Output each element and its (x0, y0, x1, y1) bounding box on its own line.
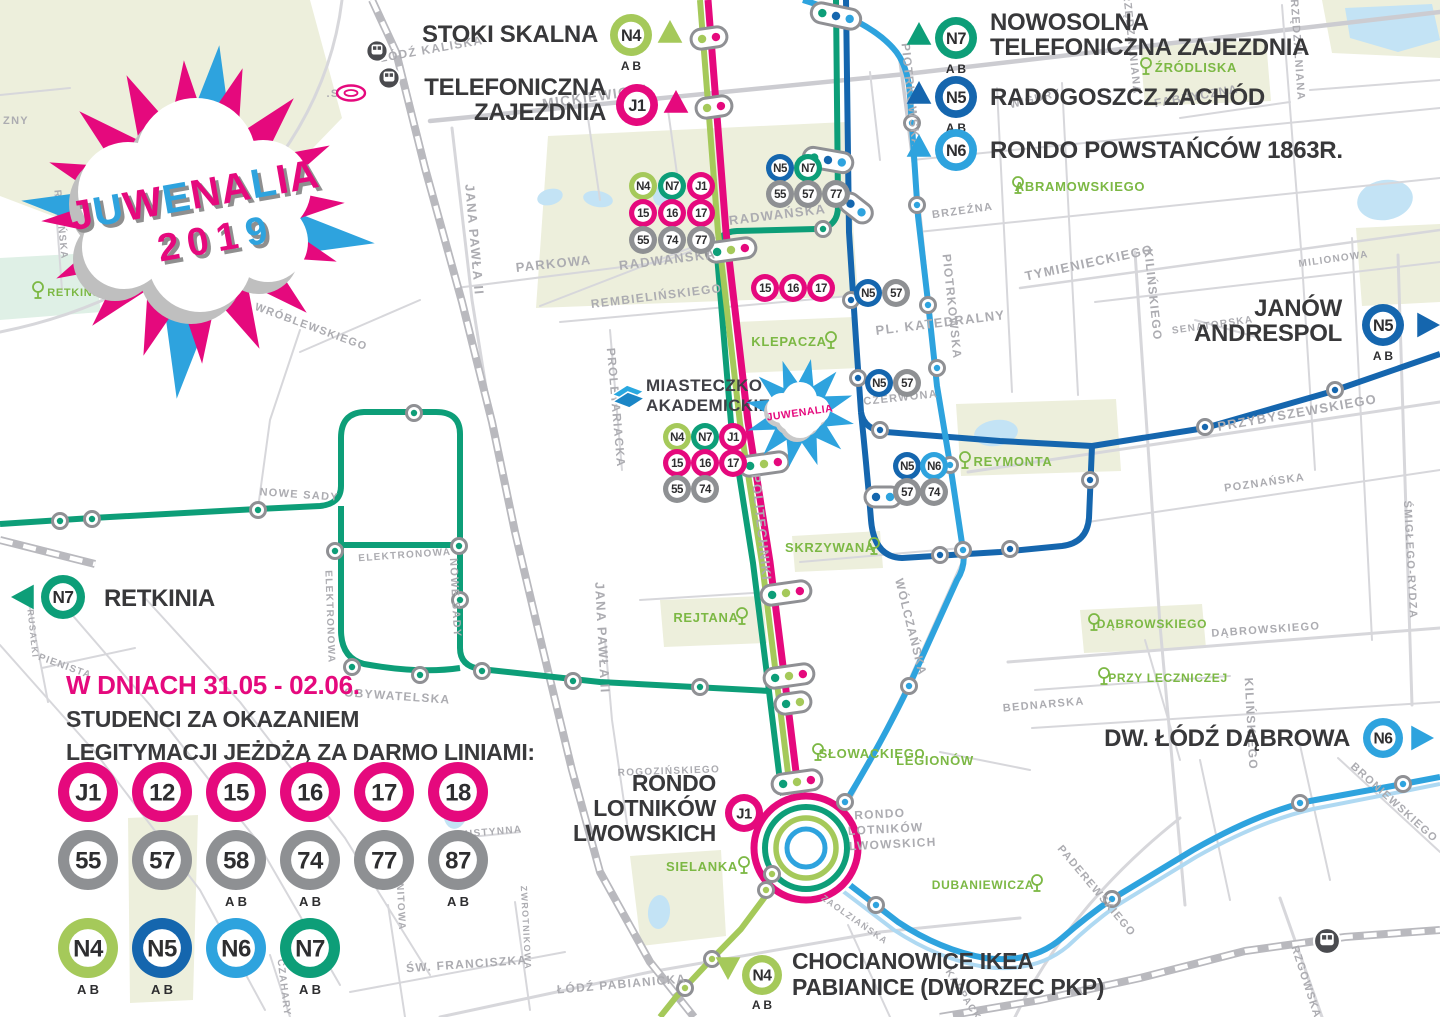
svg-text:55: 55 (637, 235, 650, 247)
line-badge-N7: N7 (935, 17, 977, 59)
svg-text:N5: N5 (900, 461, 915, 473)
line-badge-15: 15 (751, 274, 779, 302)
transit-stop-group (695, 95, 733, 120)
svg-text:57: 57 (901, 378, 913, 390)
svg-text:N7: N7 (801, 163, 815, 175)
street-label-nitowa: NITOWA (394, 883, 407, 931)
svg-text:N5: N5 (773, 163, 788, 175)
ab-label: A B (752, 998, 773, 1012)
tree-icon (739, 857, 749, 873)
transit-stop (956, 543, 971, 558)
street-label-rzgowska: RZGOWSKA (1288, 944, 1323, 1017)
line-badge-17: 17 (807, 274, 835, 302)
svg-text:15: 15 (223, 780, 249, 807)
transit-stop (873, 423, 888, 438)
svg-text:16: 16 (787, 283, 799, 295)
street-label-nowe-sady: NOWE SADY (259, 486, 339, 504)
park-label-klepacza: KLEPACZA (751, 334, 826, 349)
train-icon (367, 41, 388, 62)
svg-text:55: 55 (774, 189, 787, 201)
train-icon (379, 68, 400, 89)
svg-text:17: 17 (815, 283, 827, 295)
line-badge-N7: N7 (41, 575, 85, 619)
line-badge-15: 15 (206, 762, 266, 822)
transit-stop (838, 795, 853, 810)
transit-stop-group (760, 580, 812, 607)
transit-stop-group (809, 1, 862, 31)
svg-text:N6: N6 (1374, 731, 1394, 748)
terminus-text: PABIANICE (DWORZEC PKP) (792, 974, 1104, 1000)
ab-label: A B (447, 894, 469, 909)
street-label--w-franciszka: ŚW. FRANCISZKA (406, 952, 528, 975)
line-badge-J1: J1 (719, 423, 747, 451)
ab-label: A B (1373, 349, 1394, 363)
line-badge-N5: N5 (854, 279, 882, 307)
street-road (258, 330, 300, 508)
svg-text:74: 74 (666, 235, 679, 247)
line-badge-87: 87 (428, 830, 488, 890)
line-badge-57: 57 (794, 180, 822, 208)
badge-cluster: N557 (854, 279, 910, 307)
line-badge-15: 15 (663, 449, 691, 477)
line-badge-74: 74 (920, 478, 948, 506)
street-label-d-browskiego: DĄBROWSKIEGO (1211, 620, 1321, 640)
terminus-text: RADOGOSZCZ ZACHÓD (990, 83, 1265, 111)
park-label-przy-leczniczej: PRZY LECZNICZEJ (1108, 671, 1228, 685)
transit-stop (902, 679, 917, 694)
terminus-text: TELEFONICZNA ZAJEZDNIA (990, 34, 1309, 61)
svg-text:87: 87 (445, 848, 471, 875)
street-label-broniewskiego: BRONIEWSKIEGO (1348, 761, 1440, 845)
line-badge-N7: N7 (691, 423, 719, 451)
svg-text:15: 15 (759, 283, 772, 295)
line-badge-55: 55 (766, 180, 794, 208)
svg-text:58: 58 (223, 848, 249, 875)
svg-text:N4: N4 (621, 27, 642, 45)
street-label-kili-skiego: KILIŃSKIEGO (1242, 677, 1262, 770)
line-badge-N4: N4 (610, 14, 652, 56)
line-badge-N5: N5 (766, 154, 794, 182)
line-badge-55: 55 (629, 226, 657, 254)
svg-text:74: 74 (928, 487, 941, 499)
street-label-elektronowa: ELEKTRONOWA (322, 570, 336, 664)
park-label-d-browskiego: DĄBROWSKIEGO (1097, 617, 1207, 631)
park-label-legion-w: LEGIONÓW (896, 753, 974, 768)
svg-text:N4: N4 (670, 432, 685, 444)
campus-line1: MIASTECZKO (646, 376, 762, 395)
terminus-retkinia: RETKINIAN7 (11, 575, 215, 619)
train-icon (1314, 928, 1340, 954)
transit-stop-group (690, 26, 728, 51)
transit-stop (765, 867, 780, 882)
svg-text:N7: N7 (665, 181, 679, 193)
svg-text:J1: J1 (727, 432, 740, 444)
terminus-text: ANDRESPOL (1194, 320, 1342, 347)
ab-label: A B (299, 894, 321, 909)
park-label-sielanka: SIELANKA (666, 859, 738, 874)
line-badge-N4: N4 (742, 955, 782, 995)
legend-text-1: STUDENCI ZA OKAZANIEM (66, 706, 359, 732)
badge-cluster: N4N7J11516175574 (663, 423, 747, 503)
badge-cluster: N4N7J1151617557477 (629, 172, 715, 254)
line-badge-57: 57 (882, 279, 910, 307)
svg-text:N7: N7 (295, 936, 325, 963)
svg-text:N6: N6 (927, 461, 941, 473)
svg-text:18: 18 (445, 780, 471, 807)
svg-text:55: 55 (671, 484, 684, 496)
terminus-radogoszcz: RADOGOSZCZ ZACHÓDN5A B (907, 76, 1265, 135)
transit-stop (930, 361, 945, 376)
street-label-w-lcza-ska: WÓLCZAŃSKA (892, 577, 931, 677)
svg-text:N7: N7 (946, 30, 966, 48)
line-badge-18: 18 (428, 762, 488, 822)
svg-text:74: 74 (297, 848, 324, 875)
svg-text:12: 12 (149, 780, 175, 807)
line-badge-16: 16 (280, 762, 340, 822)
transit-stop (921, 298, 936, 313)
line-badge-N5: N5 (935, 76, 977, 118)
line-badge-74: 74 (280, 830, 340, 890)
svg-text:N4: N4 (636, 181, 651, 193)
terminus-rondo-lotnikow: RONDOLOTNIKÓWLWOWSKICHJ1 (573, 770, 763, 846)
transit-stop (413, 668, 428, 683)
terminus-text: CHOCIANOWICE IKEA (792, 948, 1034, 974)
terminus-text: LOTNIKÓW (593, 794, 716, 821)
svg-text:N4: N4 (753, 968, 773, 985)
svg-text:N6: N6 (221, 936, 251, 963)
terminus-text: ZAJEZDNIA (474, 99, 606, 126)
svg-text:57: 57 (901, 487, 913, 499)
street-label-wr-blewskiego: WRÓBLEWSKIEGO (253, 300, 369, 353)
terminus-text: LWOWSKICH (573, 820, 716, 846)
svg-text:74: 74 (699, 484, 712, 496)
line-badge-N7: N7 (280, 918, 340, 978)
line-badge-N7: N7 (794, 154, 822, 182)
svg-text:N7: N7 (53, 587, 74, 607)
svg-text:57: 57 (802, 189, 814, 201)
line-badge-N5: N5 (893, 452, 921, 480)
transit-stop (407, 406, 422, 421)
svg-text:N7: N7 (698, 432, 712, 444)
line-badge-N4: N4 (629, 172, 657, 200)
transit-stop (933, 548, 948, 563)
svg-text:16: 16 (297, 780, 323, 807)
street-road (1062, 83, 1078, 395)
park-label-reymonta: REYMONTA (973, 454, 1052, 469)
direction-arrow-left (11, 585, 34, 610)
street-label-elektronowa: ELEKTRONOWA (358, 547, 452, 564)
terminus-text: NOWOSOLNA (990, 9, 1149, 36)
line-badge-J1: J1 (616, 84, 658, 126)
svg-text:J1: J1 (628, 97, 646, 115)
street-label-bednarska: BEDNARSKA (1002, 695, 1085, 714)
line-badge-N5: N5 (132, 918, 192, 978)
line-badge-N6: N6 (920, 452, 948, 480)
transit-stop (816, 222, 831, 237)
svg-text:77: 77 (830, 189, 842, 201)
line-badge-N5: N5 (865, 369, 893, 397)
svg-text:N5: N5 (872, 378, 887, 390)
line-badge-57: 57 (132, 830, 192, 890)
ab-label: A B (225, 894, 247, 909)
transit-stop (1396, 777, 1411, 792)
transit-stop (759, 883, 774, 898)
map-canvas: MIASTECZKO AKADEMICKIE PŁ MICKIEWICZAŁÓD… (0, 0, 1440, 1017)
direction-arrow-right (1417, 313, 1440, 338)
line-badge-77: 77 (354, 830, 414, 890)
transit-stop-group (774, 691, 812, 716)
line-badge-58: 58 (206, 830, 266, 890)
street-label--d-pabianicka: ŁÓDŹ PABIANICKA (556, 970, 687, 996)
transit-stop (452, 539, 467, 554)
svg-text:J1: J1 (75, 780, 101, 807)
line-badge-N5: N5 (1362, 304, 1404, 346)
terminus-text: RONDO POWSTAŃCÓW 1863R. (990, 136, 1343, 164)
line-badge-N6: N6 (1363, 718, 1403, 758)
route-n7-west-loop-b (341, 506, 460, 670)
line-badge-74: 74 (658, 226, 686, 254)
line-badge-12: 12 (132, 762, 192, 822)
street-label-pl-katedralny: PL. KATEDRALNY (875, 307, 1006, 338)
transit-stop (475, 664, 490, 679)
line-badge-17: 17 (354, 762, 414, 822)
street-road (1135, 252, 1185, 905)
line-badge-17: 17 (719, 449, 747, 477)
svg-text:57: 57 (149, 848, 175, 875)
street-road (870, 72, 880, 160)
svg-text:J1: J1 (736, 806, 752, 822)
legend-dates: W DNIACH 31.05 - 02.06. (66, 670, 360, 700)
street-label-przybyszewskiego: PRZYBYSZEWSKIEGO (1216, 391, 1378, 434)
line-badge-N4: N4 (663, 423, 691, 451)
svg-text:N5: N5 (1373, 317, 1393, 335)
svg-text:17: 17 (727, 458, 739, 470)
park-label-dubaniewicza: DUBANIEWICZA (932, 878, 1034, 892)
transit-stop (328, 544, 343, 559)
svg-text:57: 57 (890, 288, 902, 300)
badge-cluster: N5N65774 (893, 452, 948, 506)
park-label-skrzywana: SKRZYWANA (785, 540, 875, 555)
line-badge-15: 15 (629, 199, 657, 227)
street-label-proletariacka: PROLETARIACKA (604, 347, 628, 468)
terminus-text: JANÓW (1254, 294, 1342, 322)
terminus-text: DW. ŁÓDŹ DĄBROWA (1104, 724, 1350, 752)
line-badge-J1: J1 (58, 762, 118, 822)
street-label-milionowa: MILIONOWA (1298, 249, 1369, 270)
street-label-rondo: RONDO (854, 806, 906, 823)
svg-text:15: 15 (671, 458, 684, 470)
line-badge-J1: J1 (687, 172, 715, 200)
svg-text:17: 17 (371, 780, 397, 807)
transit-stop (1003, 542, 1018, 557)
direction-arrow-up (658, 20, 683, 43)
transit-stop (869, 898, 884, 913)
transit-stop (693, 680, 708, 695)
ab-label: A B (621, 59, 642, 73)
street-label-brze-na: BRZEŹNA (931, 200, 994, 221)
line-badge-57: 57 (893, 369, 921, 397)
street-label-jana-paw-a-ii: JANA PAWŁA II (592, 582, 613, 694)
direction-arrow-up (907, 22, 932, 45)
line-badge-55: 55 (663, 475, 691, 503)
svg-text:N5: N5 (861, 288, 876, 300)
svg-text:J1: J1 (695, 181, 708, 193)
terminus-text: RONDO (632, 770, 716, 796)
terminus-text: TELEFONICZNA (424, 74, 606, 101)
stadium-icon (337, 86, 365, 101)
svg-text:16: 16 (699, 458, 711, 470)
line-badge-J1: J1 (725, 794, 763, 832)
line-badge-57: 57 (893, 478, 921, 506)
line-badge-55: 55 (58, 830, 118, 890)
transit-stop (251, 503, 266, 518)
ab-label: A B (299, 982, 321, 997)
transit-stop (85, 512, 100, 527)
street-label-obywatelska: OBYWATELSKA (344, 685, 451, 706)
svg-text:N4: N4 (73, 936, 104, 963)
terminus-text: RETKINIA (104, 585, 215, 612)
direction-arrow-down (716, 957, 741, 980)
ab-label: A B (946, 62, 967, 76)
street-road (1310, 80, 1440, 90)
svg-text:15: 15 (637, 208, 650, 220)
transit-stop (851, 371, 866, 386)
terminus-janow-andrespol: JANÓWANDRESPOLN5A B (1194, 294, 1440, 363)
park-label-abramowskiego: ABRAMOWSKIEGO (1015, 179, 1145, 194)
park-label--r-dliska: ŹRÓDLISKA (1155, 60, 1237, 75)
ab-label: A B (77, 982, 99, 997)
street-label-rusa-ki: RUSAŁKI (25, 609, 40, 659)
transit-stop-group (763, 663, 815, 690)
ab-label: A B (151, 982, 173, 997)
line-badge-77: 77 (822, 180, 850, 208)
terminus-text: STOKI SKALNA (422, 21, 598, 48)
terminus-dw-lodz-dabrowa: DW. ŁÓDŹ DĄBROWAN6 (1104, 718, 1434, 758)
svg-text:77: 77 (371, 848, 397, 875)
line-badge-17: 17 (687, 199, 715, 227)
svg-text:17: 17 (695, 208, 707, 220)
svg-text:16: 16 (666, 208, 678, 220)
park-label-rejtana: REJTANA (673, 610, 738, 625)
legend-text-2: LEGITYMACJI JEŻDŻĄ ZA DARMO LINIAMI: (66, 739, 535, 765)
svg-text:N6: N6 (946, 142, 966, 160)
street-label-zny: ZNY (3, 115, 29, 127)
line-badge-N6: N6 (935, 129, 977, 171)
transit-stop (1293, 796, 1308, 811)
svg-text:N5: N5 (147, 936, 177, 963)
svg-text:N5: N5 (946, 89, 966, 107)
line-badge-77: 77 (687, 226, 715, 254)
line-badge-16: 16 (691, 449, 719, 477)
transit-stop (1083, 473, 1098, 488)
line-badge-74: 74 (691, 475, 719, 503)
badge-cluster: 151617 (751, 274, 835, 302)
street-label-piotrkowska: PIOTRKOWSKA (939, 253, 964, 360)
line-badge-16: 16 (658, 199, 686, 227)
svg-text:55: 55 (75, 848, 101, 875)
direction-arrow-up (664, 90, 689, 113)
svg-text:77: 77 (695, 235, 707, 247)
line-badge-N6: N6 (206, 918, 266, 978)
terminus-stoki-skalna: STOKI SKALNAN4A B (422, 14, 682, 73)
transit-stop (1198, 420, 1213, 435)
line-badge-N4: N4 (58, 918, 118, 978)
line-badge-N7: N7 (658, 172, 686, 200)
transit-stop (910, 198, 925, 213)
street-road (997, 88, 1012, 392)
transit-stop (566, 674, 581, 689)
street-label--mig-ego-rydza: ŚMIGŁEGO-RYDZA (1401, 500, 1420, 619)
transit-stop (53, 514, 68, 529)
direction-arrow-right (1411, 726, 1434, 751)
juwenalia-transit-map: MIASTECZKO AKADEMICKIE PŁ MICKIEWICZAŁÓD… (0, 0, 1440, 1017)
terminus-rondo-powstancow: RONDO POWSTAŃCÓW 1863R.N6 (907, 129, 1343, 171)
line-badge-16: 16 (779, 274, 807, 302)
transit-stop (1328, 383, 1343, 398)
